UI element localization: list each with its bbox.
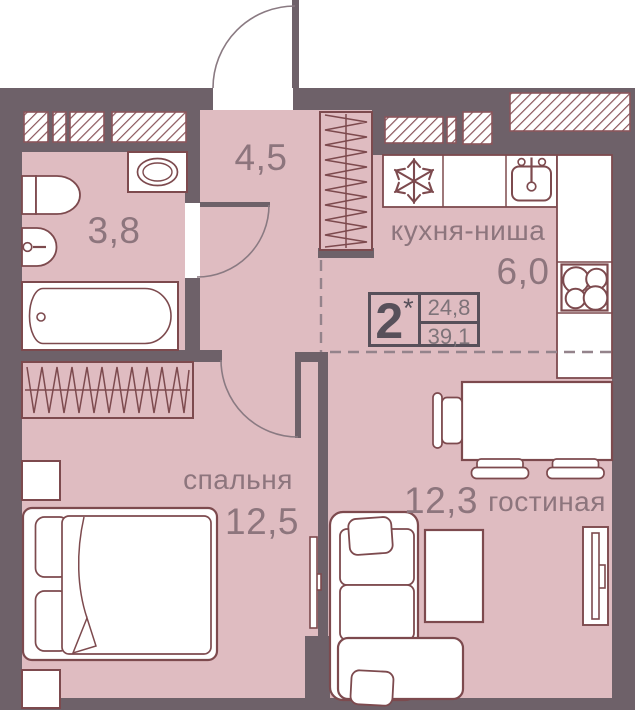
floor-plan: 4,5 3,8 кухня-ниша 6,0 спальня 12,5 12,3… <box>0 0 635 710</box>
wall-top-mid <box>293 88 512 110</box>
entry-door-leaf <box>292 0 299 88</box>
tap-handle-icon <box>539 159 546 166</box>
bedroom-door-leaf <box>295 360 301 438</box>
bathroom-opening <box>185 203 200 278</box>
chair <box>433 393 442 448</box>
vent-hatch-icon <box>24 112 48 142</box>
rooms-count-star: * <box>403 295 414 322</box>
partition-wall <box>318 353 328 636</box>
vent-hatch-icon <box>463 112 492 144</box>
bedroom-name-label: спальня <box>183 464 293 496</box>
coffee-table <box>425 530 483 622</box>
toilet-icon <box>36 176 80 214</box>
dining-table <box>462 382 612 460</box>
kitchen-area-label: 6,0 <box>497 251 550 293</box>
bathroom-area-label: 3,8 <box>88 210 141 252</box>
wall-tv-icon <box>310 537 317 628</box>
tap-icon <box>527 182 536 191</box>
tap-icon <box>23 243 32 252</box>
chair <box>472 468 529 479</box>
vent-hatch-icon <box>70 112 104 142</box>
areas: 24,8 39,1 <box>418 295 477 344</box>
rooms-count-number: 2 <box>375 295 403 347</box>
floor-plan-svg <box>0 0 635 710</box>
wall-top-left <box>0 88 213 110</box>
drain-icon <box>37 313 45 321</box>
hallway-area-label: 4,5 <box>235 137 288 179</box>
living-area-value: 24,8 <box>421 295 477 321</box>
bedroom-top-wall <box>22 350 222 362</box>
bath-wall-lower <box>185 278 200 362</box>
nightstand <box>22 461 60 500</box>
sofa-pillow <box>348 517 393 556</box>
burner-icon <box>566 289 586 309</box>
living-area-label: 12,3 <box>404 480 478 522</box>
chair <box>442 398 462 444</box>
sofa-cushion <box>340 585 414 640</box>
burner-icon <box>584 286 608 310</box>
nightstand <box>22 670 60 708</box>
chair <box>547 468 604 479</box>
vent-hatch-icon <box>385 117 443 143</box>
vent-hatch-icon <box>53 112 66 142</box>
sofa-pillow <box>350 670 394 706</box>
rooms-count: 2 * <box>371 295 418 344</box>
partition-pier <box>305 636 330 710</box>
entry-opening <box>213 88 293 110</box>
vent-hatch-icon <box>510 93 630 131</box>
washer-drum-icon <box>143 163 172 181</box>
toilet-tank-icon <box>22 176 36 214</box>
kitchen-name-label: кухня-ниша <box>391 215 546 247</box>
bathroom-door-leaf <box>195 202 270 207</box>
entry-door-arc-icon <box>213 6 295 88</box>
apartment-badge: 2 * 24,8 39,1 <box>368 292 480 347</box>
wall-tv-icon <box>592 533 599 619</box>
vent-hatch-icon <box>112 112 186 142</box>
wall-left <box>0 88 22 710</box>
total-area-value: 39,1 <box>421 321 477 350</box>
wall-right <box>612 110 635 710</box>
bathtub-inner-icon <box>30 289 172 344</box>
living-name-label: гостиная <box>488 486 606 518</box>
tap-handle-icon <box>518 159 525 166</box>
bedroom-area-label: 12,5 <box>225 501 299 543</box>
vent-hatch-icon <box>447 117 456 143</box>
